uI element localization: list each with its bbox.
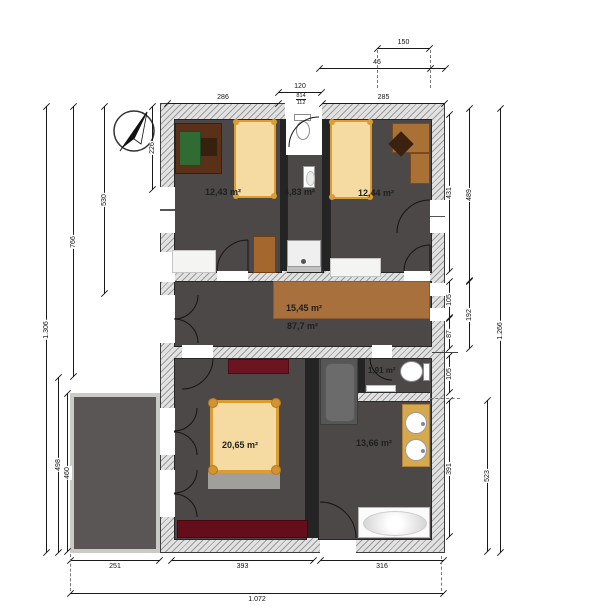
window-room1-left <box>160 187 175 233</box>
dim-label: 1.306 <box>43 320 51 340</box>
dim-room2-width: 285 <box>322 103 445 104</box>
desk-pad <box>179 131 201 166</box>
dim-label: 1.266 <box>497 321 505 341</box>
dim-right-hall: 192 <box>469 281 470 349</box>
vanity-sink-1 <box>405 412 427 434</box>
dim-label: 285 <box>377 94 391 102</box>
corner-desk-side <box>410 153 430 184</box>
dim-left-total: 1.306 <box>46 106 47 553</box>
dresser-white-room1 <box>172 250 216 273</box>
dim-left-room: 530 <box>104 106 105 294</box>
dim-label: 814 <box>296 93 305 100</box>
door-hall-left <box>160 295 175 343</box>
opening-hall-right-2 <box>430 308 445 321</box>
toilet-tank <box>294 114 311 121</box>
wall-wc-bottom <box>358 392 430 402</box>
witness-line <box>70 554 71 591</box>
dim-window-spec: 814 112 <box>291 93 311 106</box>
area-label-bath-top: 4,83 m² <box>284 187 315 197</box>
dim-right-lower: 523 <box>487 400 488 552</box>
window-room2-right <box>430 200 445 233</box>
vanity-sink-2 <box>405 439 427 461</box>
dim-room1-width: 286 <box>167 103 279 104</box>
dim-label: 530 <box>101 193 109 207</box>
dim-window-width: 150 <box>377 48 430 49</box>
witness-line <box>430 398 460 399</box>
dim-label: 120 <box>293 83 307 91</box>
bed-rug <box>208 472 280 489</box>
dim-label: 105 <box>446 367 454 381</box>
door-room2 <box>404 271 430 281</box>
shower-base <box>287 267 321 272</box>
witness-line <box>441 556 442 591</box>
dim-right-room: 431 <box>449 114 450 272</box>
shower-drain <box>301 259 306 264</box>
area-label-landing: 15,45 m² <box>286 303 322 313</box>
dim-right-wc: 105 <box>449 355 450 393</box>
area-label-room1: 12,43 m² <box>205 187 241 197</box>
dim-right-upper: 489 <box>469 108 470 281</box>
area-label-bedroom: 20,65 m² <box>222 440 258 450</box>
opening-bottom-wall <box>320 540 356 553</box>
dim-bedroom-width: 393 <box>171 560 314 561</box>
dim-label: 523 <box>484 469 492 483</box>
wardrobe <box>253 236 276 273</box>
dim-right-hall-a: 105 <box>449 281 450 318</box>
wall-wc-left <box>358 358 365 392</box>
bed-master <box>210 400 279 473</box>
floor-plan-canvas: 12,43 m² 4,83 m² 12,44 m² 15,45 m² 87,7 … <box>0 0 614 615</box>
dim-label: 150 <box>397 39 411 47</box>
witness-line <box>377 50 378 88</box>
dim-label: 489 <box>466 188 474 202</box>
area-label-wc: 1,91 m² <box>368 366 396 376</box>
dim-right-bath: 391 <box>449 400 450 537</box>
door-wc <box>372 345 392 358</box>
area-label-room2: 12,44 m² <box>358 188 394 198</box>
door-terrace-2 <box>160 470 175 517</box>
desk-chair <box>201 138 217 156</box>
area-label-bathroom: 13,66 m² <box>356 438 392 448</box>
dim-label: 316 <box>375 563 389 571</box>
dresser-red-top <box>228 359 289 374</box>
door-bedroom <box>182 345 213 358</box>
dim-label: 87 <box>446 329 454 339</box>
dim-bath-bottom-width: 316 <box>320 560 444 561</box>
opening-hall-right-1 <box>430 283 445 296</box>
wc-toilet-bowl <box>400 361 423 382</box>
dim-label: 1.072 <box>247 596 267 604</box>
dim-label: 766 <box>70 235 78 249</box>
dim-right-hall-b: 87 <box>449 318 450 349</box>
shower-tray <box>287 240 321 267</box>
dim-label: 498 <box>55 458 63 472</box>
door-terrace-1 <box>160 408 175 455</box>
dim-label: 226 <box>149 141 157 155</box>
dim-label: 431 <box>446 186 454 200</box>
witness-line <box>430 50 431 88</box>
dim-left-top: 226 <box>152 106 153 190</box>
shower-cabin <box>320 358 358 425</box>
dim-terrace-width: 251 <box>70 560 160 561</box>
toilet-bowl <box>296 121 310 140</box>
witness-line <box>432 352 458 353</box>
dim-bottom-total: 1.072 <box>70 593 444 594</box>
north-arrow-icon <box>114 111 154 151</box>
dim-label: 391 <box>446 462 454 476</box>
dim-label: 105 <box>446 293 454 307</box>
dim-right-total: 1.266 <box>500 108 501 553</box>
area-label-floor-total: 87,7 m² <box>287 321 318 331</box>
dresser-red-bottom <box>177 520 308 538</box>
dim-label: 112 <box>297 100 306 106</box>
dim-terrace-height: 460 <box>67 393 68 552</box>
dim-label: 286 <box>216 94 230 102</box>
door-room1 <box>217 271 248 281</box>
sink <box>303 166 315 188</box>
dresser-white-room2 <box>330 258 381 277</box>
dim-label: 192 <box>466 308 474 322</box>
wall-bedroom-bathroom <box>305 358 318 538</box>
dim-left-upper: 766 <box>73 106 74 377</box>
dim-window-offset: 46 <box>319 68 446 69</box>
wc-toilet-tank <box>423 363 430 381</box>
stair-landing <box>273 281 430 319</box>
wc-shelf <box>366 385 396 392</box>
dim-label: 251 <box>108 563 122 571</box>
dim-label: 393 <box>236 563 250 571</box>
terrace <box>70 393 160 553</box>
bathtub <box>358 507 430 538</box>
dim-left-lower: 498 <box>58 377 59 553</box>
dim-label: 460 <box>64 466 72 480</box>
